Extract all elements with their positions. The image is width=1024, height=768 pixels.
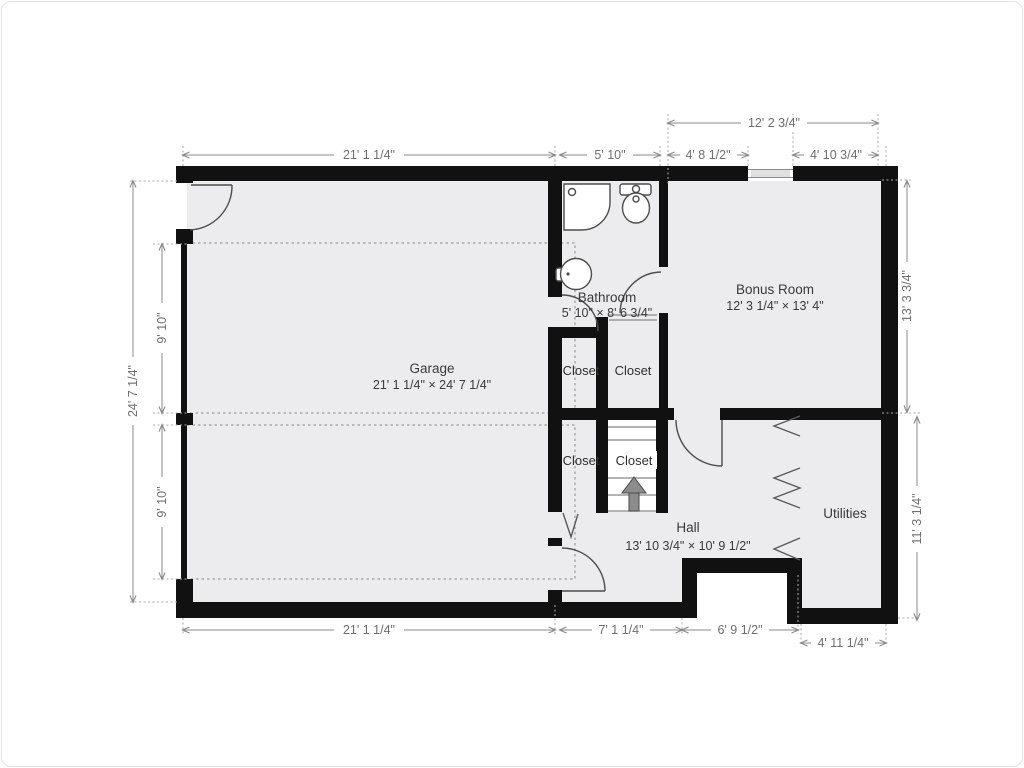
bathroom-right-wall-upper [659, 181, 668, 267]
bottom-wall-utilities [787, 608, 898, 624]
exterior-notch [697, 573, 787, 618]
left-wall-top-corner [176, 166, 193, 183]
dim-top-bonus-left: 4' 8 1/2" [685, 148, 730, 162]
toilet-hinge [633, 196, 639, 202]
window-sill [751, 170, 790, 177]
divider-wall-lower [548, 590, 562, 618]
sink-tap-dot [566, 272, 569, 275]
garage-label: Garage [409, 361, 454, 376]
dim-right-bonus: 13' 3 3/4" [900, 270, 914, 322]
bonus-room-floor [668, 181, 881, 413]
dim-bottom-garage: 21' 1 1/4" [343, 623, 395, 637]
dim-bottom-notch: 6' 9 1/2" [717, 623, 762, 637]
notch-top-wall [682, 558, 802, 573]
divider-wall-mid [548, 334, 562, 512]
left-wall-bottom-corner [176, 579, 193, 618]
bonus-room-window [748, 166, 793, 181]
bathroom-dims: 5' 10" × 8' 6 3/4" [562, 306, 652, 320]
dim-right-utilities: 11' 3 1/4" [910, 493, 924, 544]
garage-dims: 21' 1 1/4" × 24' 7 1/4" [373, 378, 491, 392]
closet-upper-left-label: Closet [563, 363, 600, 378]
dim-left-outer: 24' 7 1/4" [126, 365, 140, 417]
hall-dims: 13' 10 3/4" × 10' 9 1/2" [625, 539, 750, 553]
bonus-room-dims: 12' 3 1/4" × 13' 4" [726, 299, 823, 313]
floor-plan-page: Garage 21' 1 1/4" × 24' 7 1/4" Bathroom … [0, 0, 1024, 768]
bathroom-label: Bathroom [578, 290, 637, 305]
closet-upper-right-label: Closet [615, 363, 652, 378]
dim-bottom-hall-left: 7' 1 1/4" [598, 623, 643, 637]
floor-areas [187, 181, 881, 618]
dim-top-outer: 12' 2 3/4" [748, 116, 800, 130]
closet-lower-left-label: Closet [563, 453, 600, 468]
toilet-button [633, 186, 640, 193]
up-arrow-shaft [629, 493, 639, 511]
bathroom-right-wall-lower [659, 313, 668, 420]
dim-bottom-utilities: 4' 11 1/4" [817, 636, 868, 650]
bonus-room-label: Bonus Room [736, 282, 814, 297]
bonus-hall-wall [720, 408, 881, 420]
dim-top-garage: 21' 1 1/4" [343, 148, 395, 162]
dim-top-bathroom: 5' 10" [594, 148, 625, 162]
utilities-label: Utilities [823, 506, 867, 521]
hall-label: Hall [676, 520, 699, 535]
bonus-hall-wall-stub [660, 408, 674, 420]
dim-left-bay1: 9' 10" [155, 312, 169, 343]
left-wall-stub-2 [176, 413, 193, 425]
dim-left-bay2: 9' 10" [155, 486, 169, 517]
bottom-wall-garage-hall [177, 602, 697, 618]
left-wall-stub-1 [176, 229, 193, 244]
right-wall [881, 166, 898, 624]
floor-plan: Garage 21' 1 1/4" × 24' 7 1/4" Bathroom … [0, 0, 1024, 768]
garage-floor [187, 181, 555, 605]
toilet-icon [620, 184, 651, 223]
stairwell-right-wall [656, 420, 668, 513]
closet-stairs-label: Closet [616, 453, 653, 468]
top-wall-left [177, 166, 748, 181]
middle-hall-wall [548, 408, 668, 420]
shower-drain [569, 189, 576, 196]
garage-door-2-panel [181, 425, 187, 579]
dim-top-bonus-right: 4' 10 3/4" [810, 148, 862, 162]
garage-door-1-panel [181, 244, 187, 413]
sink-basin [561, 259, 592, 290]
divider-wall-stub [548, 538, 562, 546]
notch-left-wall [682, 573, 697, 618]
top-wall-right [793, 166, 893, 181]
